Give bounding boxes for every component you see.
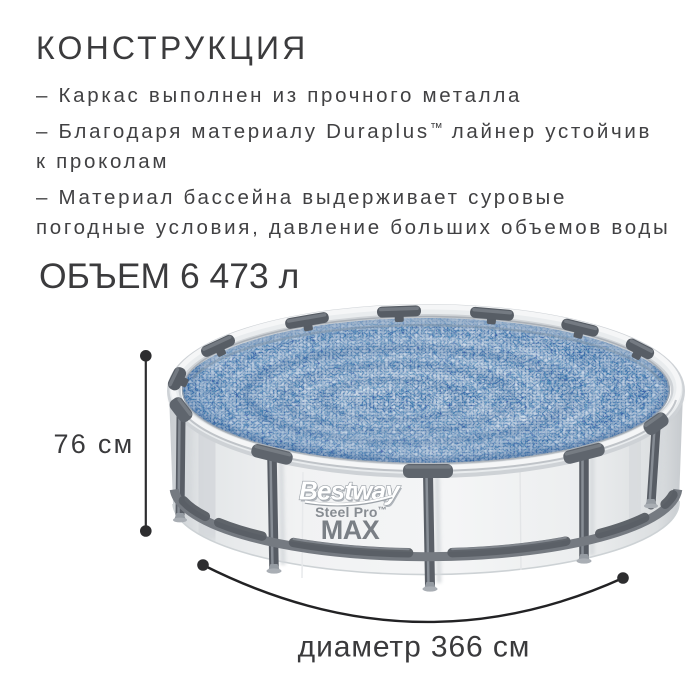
svg-text:MAX: MAX (321, 515, 380, 545)
svg-text:диаметр 366 см: диаметр 366 см (298, 631, 531, 664)
svg-text:76 см: 76 см (53, 429, 134, 459)
svg-text:Bestway: Bestway (299, 476, 401, 506)
